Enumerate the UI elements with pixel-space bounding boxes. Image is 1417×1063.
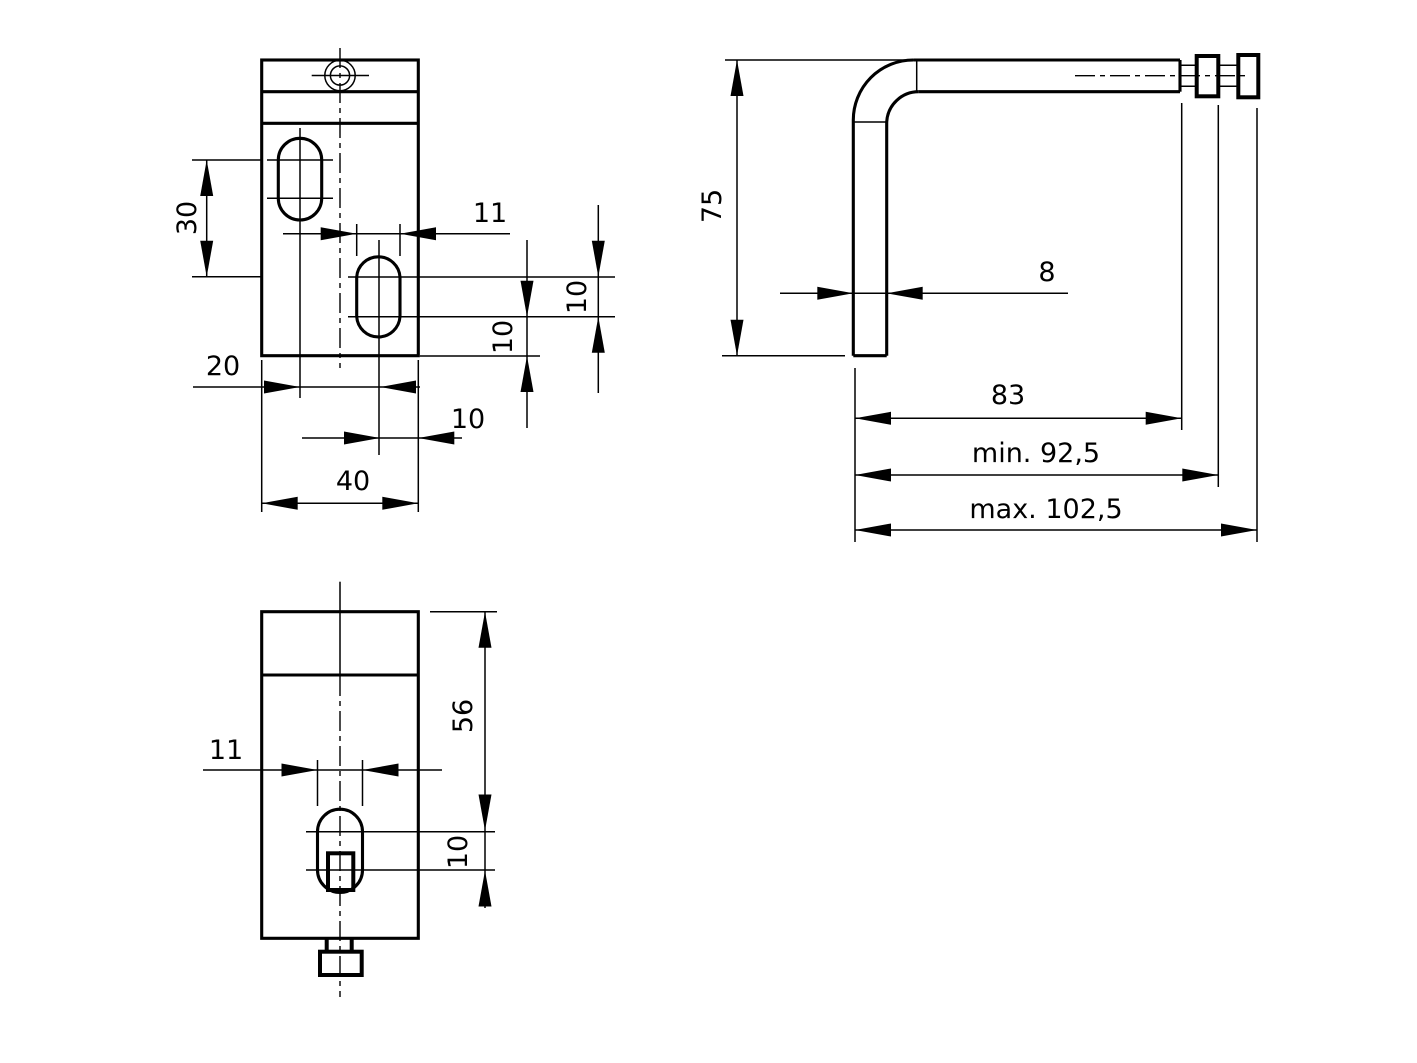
dim-label: 40 bbox=[336, 466, 370, 497]
dim-slot-center-to-edge: 10 bbox=[302, 404, 485, 445]
dim-label: 20 bbox=[206, 351, 240, 382]
dim-slot-width-bottom: 11 bbox=[203, 735, 442, 806]
dim-label: 30 bbox=[172, 201, 203, 235]
mounting-slot-upper bbox=[267, 128, 333, 398]
bottom-screw bbox=[320, 938, 362, 975]
dim-label: 56 bbox=[448, 699, 479, 733]
dim-slot-vertical-offset: 30 bbox=[172, 160, 262, 277]
dim-label: 10 bbox=[562, 280, 593, 314]
dim-slot-to-bottom: 10 bbox=[420, 240, 540, 428]
bottom-view: 11 56 10 bbox=[203, 582, 497, 997]
dim-label: 83 bbox=[991, 380, 1025, 411]
dim-label: 10 bbox=[443, 835, 474, 869]
front-view: 30 11 10 10 bbox=[172, 48, 615, 512]
dim-slot-centers: 20 bbox=[193, 351, 420, 512]
dim-part-width: 40 bbox=[262, 466, 419, 510]
dim-label: 8 bbox=[1038, 257, 1055, 288]
dim-slot-arc-spacing: 10 bbox=[562, 205, 605, 393]
bend-outer-arc bbox=[853, 60, 913, 120]
screw-head bbox=[320, 952, 362, 975]
bend-inner-arc bbox=[887, 92, 919, 122]
drawing-canvas: 30 11 10 10 bbox=[0, 0, 1417, 1063]
dim-arm-length: 83 bbox=[855, 103, 1182, 542]
dim-label: 75 bbox=[697, 189, 728, 223]
dim-label: 11 bbox=[473, 198, 507, 229]
dim-label: max. 102,5 bbox=[969, 494, 1122, 525]
dim-label: min. 92,5 bbox=[972, 438, 1100, 469]
dim-slot-width: 11 bbox=[283, 198, 510, 256]
side-view: 75 8 83 min. 92,5 bbox=[697, 55, 1258, 542]
dim-slot-position: 56 10 bbox=[430, 612, 497, 908]
dim-label: 11 bbox=[209, 735, 243, 766]
dim-label: 10 bbox=[451, 404, 485, 435]
dim-thickness: 8 bbox=[780, 257, 1068, 300]
bracket-technical-drawing: 30 11 10 10 bbox=[0, 0, 1417, 1063]
dim-label: 10 bbox=[488, 320, 519, 354]
dim-leg-height: 75 bbox=[697, 60, 915, 356]
